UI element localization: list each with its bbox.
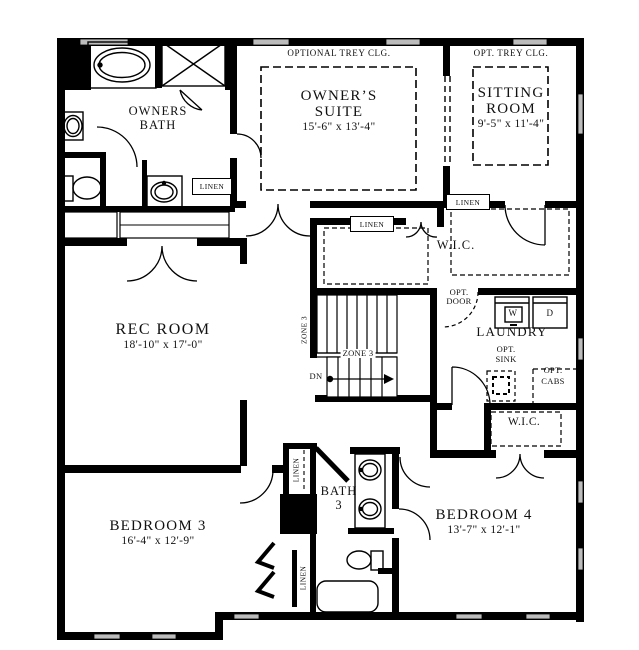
door-arc — [406, 222, 437, 237]
wic-main-label: W.I.C. — [437, 239, 476, 252]
sitting-room-dims: 9'-5" x 11'-4" — [478, 119, 545, 131]
window-marker — [578, 338, 583, 360]
dryer-label: D — [546, 309, 553, 318]
door-arc — [237, 134, 261, 158]
door-arc — [496, 454, 544, 478]
opt-cabs-label2: CABS — [541, 377, 564, 386]
stairs-icon — [317, 295, 397, 397]
closet-rod — [324, 228, 428, 284]
linen-closet-wic-right: LINEN — [446, 194, 490, 210]
linen-closet-hall-lower: LINEN — [299, 566, 307, 591]
linen-closet-wic-left: LINEN — [350, 216, 394, 232]
sitting-room-label2: ROOM — [486, 102, 536, 117]
door-arc — [452, 367, 490, 405]
owners-bath-label2: BATH — [140, 119, 177, 132]
opt-door-label2: DOOR — [446, 297, 471, 306]
sitting-room-label: SITTING — [478, 86, 545, 101]
owners-suite-label: OWNER’S — [301, 89, 378, 104]
door-arc — [505, 205, 545, 245]
shelves-icon — [63, 212, 229, 238]
bedroom4-dims: 13'-7" x 12'-1" — [447, 525, 520, 537]
bifold-door — [258, 543, 274, 597]
vanity-sink-icon — [147, 176, 182, 209]
window-marker — [94, 634, 120, 639]
laundry-label: LAUNDRY — [476, 325, 547, 338]
owners-bath-label: OWNERS — [129, 105, 188, 118]
door-arc — [246, 204, 310, 236]
window-marker — [578, 94, 583, 134]
bedroom3-label: BEDROOM 3 — [109, 519, 206, 534]
bedroom3-dims: 16'-4" x 12'-9" — [121, 536, 194, 548]
bath3-label: BATH — [321, 485, 358, 498]
window-marker — [578, 481, 583, 503]
bathtub-icon — [88, 42, 156, 88]
bathtub-icon — [317, 581, 378, 612]
sitting-room-ceiling-label: OPT. TREY CLG. — [474, 49, 549, 58]
shower-icon — [162, 42, 225, 86]
owners-suite-label2: SUITE — [315, 105, 364, 120]
door-arc — [127, 246, 197, 281]
window-marker — [456, 614, 482, 619]
wic-bed4-label: W.I.C. — [508, 417, 540, 429]
opt-sink-bowl — [493, 377, 509, 394]
toilet-icon — [347, 551, 383, 570]
linen-closet-bath: LINEN — [192, 178, 232, 195]
window-marker — [578, 548, 583, 570]
window-marker — [386, 39, 420, 45]
stairs-down-label: DN — [308, 372, 325, 381]
washer-label: W — [508, 309, 517, 318]
cased-opening — [445, 76, 450, 166]
opt-sink-label: OPT. — [497, 345, 516, 354]
linen-closet-hall-upper: LINEN — [292, 458, 300, 483]
rec-room-dims: 18'-10" x 17'-0" — [123, 340, 202, 352]
opt-sink-outline — [487, 371, 515, 401]
owners-suite-ceiling-label: OPTIONAL TREY CLG. — [287, 49, 390, 58]
rec-room-label: REC ROOM — [115, 322, 210, 338]
owners-suite-dims: 15'-6" x 13'-4" — [302, 122, 375, 134]
door-arc — [240, 470, 273, 503]
linen-closet-label: LINEN — [456, 198, 481, 207]
stairs-down-dot — [327, 376, 333, 382]
linen-closet-label: LINEN — [360, 220, 385, 229]
zone3-upper-label: ZONE 3 — [300, 316, 308, 344]
linen-closet-label: LINEN — [200, 182, 225, 191]
door-arc — [400, 457, 430, 487]
opt-sink-label2: SINK — [495, 355, 516, 364]
bath3-label2: 3 — [335, 499, 342, 512]
window-marker — [234, 614, 259, 619]
double-vanity-icon — [355, 454, 385, 528]
window-marker — [253, 39, 289, 45]
window-marker — [513, 39, 547, 45]
window-marker — [526, 614, 550, 619]
zone3-lower-label: ZONE 3 — [341, 349, 376, 358]
bedroom4-label: BEDROOM 4 — [435, 508, 532, 523]
floor-plan: OPTIONAL TREY CLG. OWNER’S SUITE 15'-6" … — [0, 0, 639, 650]
toilet-icon — [60, 176, 101, 201]
door-arc — [399, 509, 430, 540]
angled-door — [316, 448, 348, 481]
opt-cabs-label: OPT. — [544, 366, 563, 375]
window-marker — [152, 634, 176, 639]
